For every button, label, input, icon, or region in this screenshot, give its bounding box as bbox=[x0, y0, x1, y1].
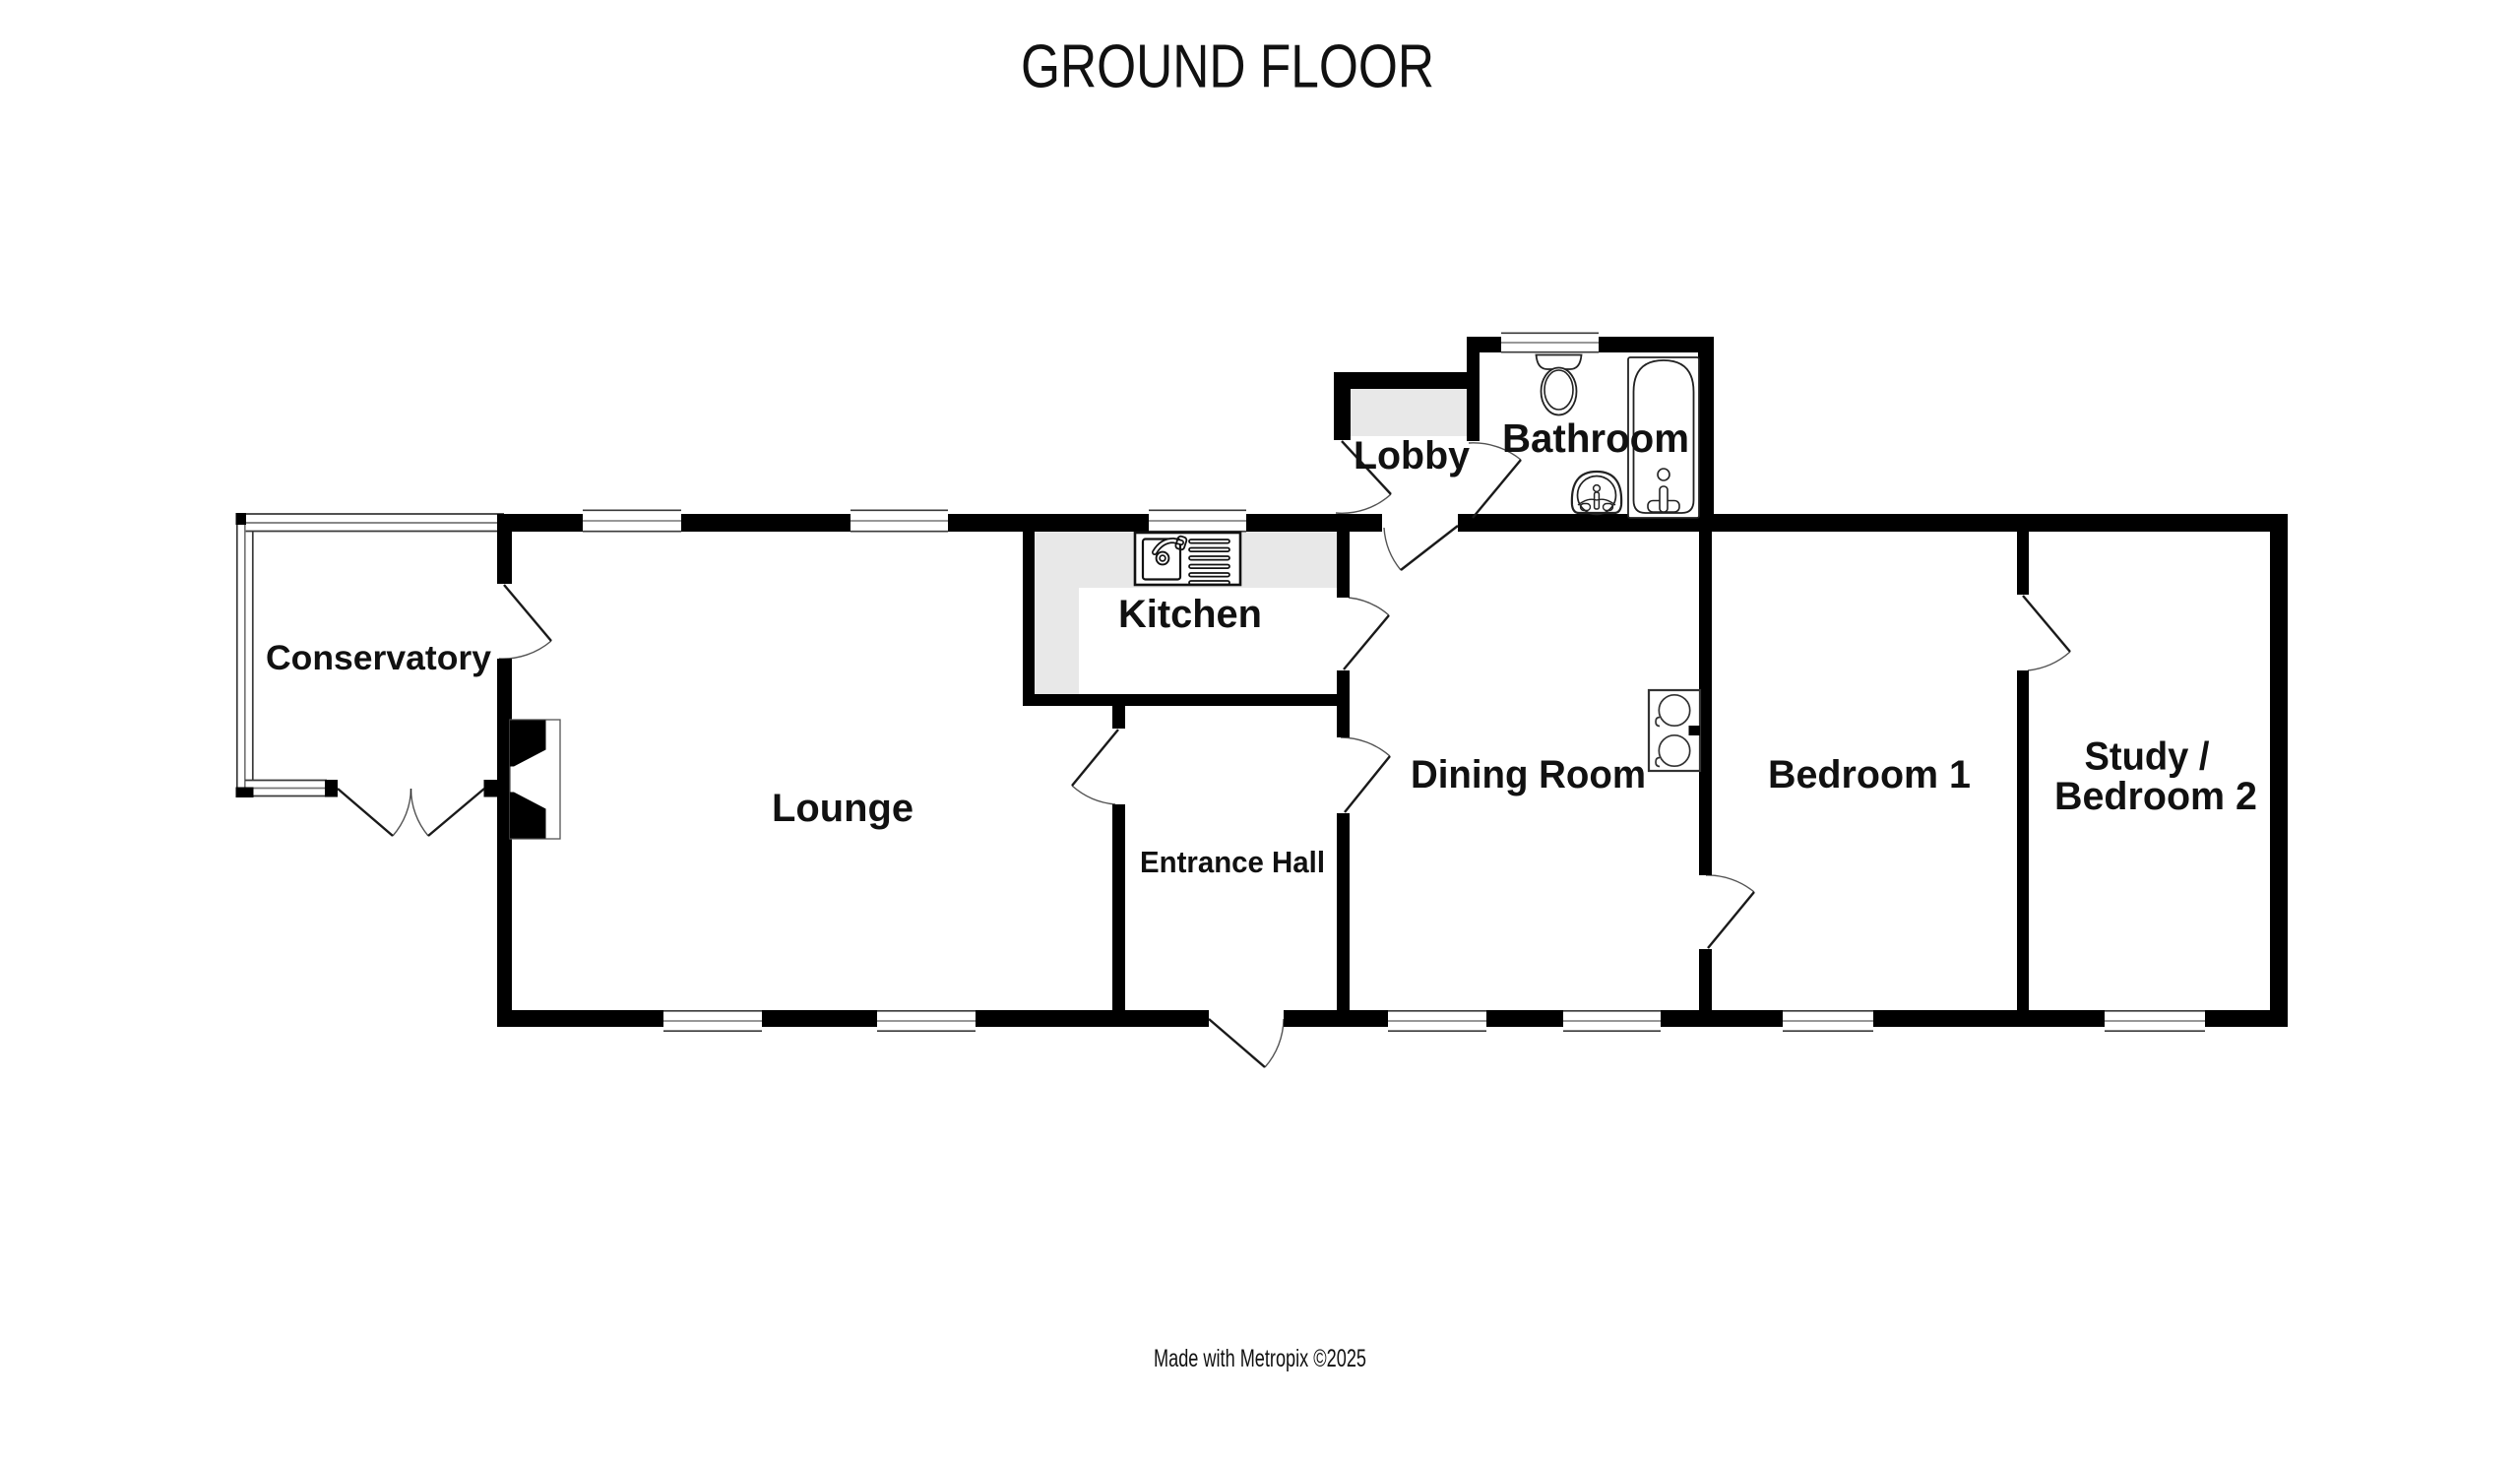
svg-text:Bathroom: Bathroom bbox=[1502, 415, 1689, 461]
svg-text:GROUND FLOOR: GROUND FLOOR bbox=[1021, 33, 1434, 101]
svg-text:Conservatory: Conservatory bbox=[266, 638, 491, 677]
svg-text:Kitchen: Kitchen bbox=[1118, 593, 1262, 636]
svg-text:Dining Room: Dining Room bbox=[1411, 753, 1646, 796]
svg-text:Lobby: Lobby bbox=[1354, 434, 1470, 477]
svg-text:Made with Metropix ©2025: Made with Metropix ©2025 bbox=[1154, 1345, 1366, 1372]
svg-text:Entrance Hall: Entrance Hall bbox=[1140, 846, 1325, 879]
svg-text:Bedroom 1: Bedroom 1 bbox=[1768, 753, 1971, 796]
svg-text:Bedroom 2: Bedroom 2 bbox=[2054, 775, 2257, 818]
svg-text:Study /: Study / bbox=[2085, 735, 2210, 779]
svg-text:Lounge: Lounge bbox=[772, 787, 913, 830]
